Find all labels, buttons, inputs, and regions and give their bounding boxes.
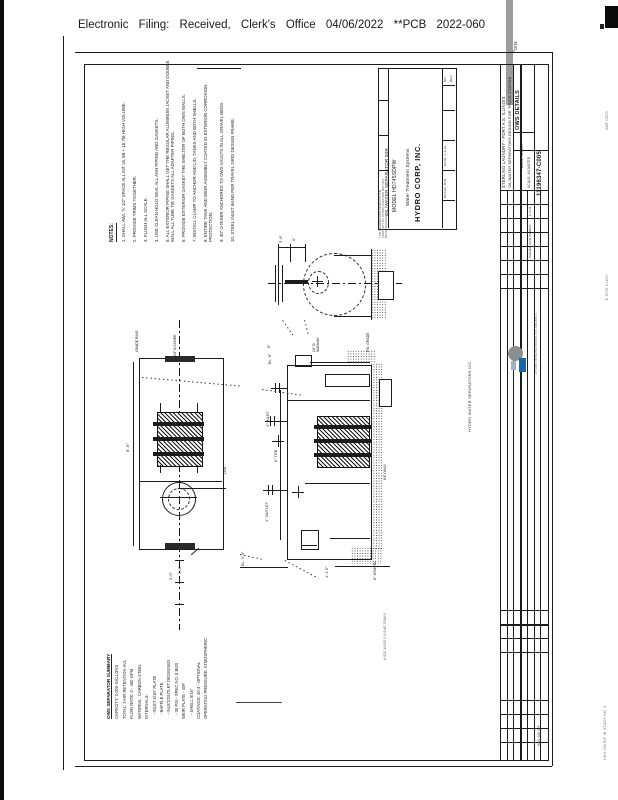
summary-heading: OWS SEPARATOR SUMMARY xyxy=(106,654,112,719)
strip-row xyxy=(500,288,548,289)
elev-gravel-label: 8" GRAVEL xyxy=(374,554,378,580)
plan-dia-label: DIA. xyxy=(223,458,227,474)
elev-media-band xyxy=(314,453,371,457)
notes-heading: NOTES: xyxy=(110,223,117,242)
note-item: 1. SHALL AWL 'A' 1/2" SPACE ALL INT UL 5… xyxy=(121,58,126,242)
endview-pipe-support xyxy=(378,271,394,300)
plan-ext-tick xyxy=(197,403,198,412)
notes-block: NOTES: 1. SHALL AWL 'A' 1/2" SPACE ALL I… xyxy=(100,58,242,242)
summary-line: - SHELL 5/16" xyxy=(190,598,195,715)
edge-fragment-2: E SITE 14150 xyxy=(606,238,610,300)
plan-media-band xyxy=(153,422,204,426)
note-item: 5. ALL EXTERIOR PIPING SHALL GET THE REG… xyxy=(165,58,175,242)
strip-row xyxy=(500,218,548,219)
strip-row xyxy=(500,700,548,701)
note-item: 10. STEEL INLET BAND PER TRAVEL GRID DES… xyxy=(230,58,235,242)
plan-access-label: 24" O COVER xyxy=(174,330,178,356)
stamp-cut-fragment: *ons xyxy=(514,26,520,52)
strip-row xyxy=(500,232,548,233)
edge-fragment-3: HNS 280 B/F IN STUDS NO. 2 xyxy=(604,610,608,760)
endview-dim-b: 6" xyxy=(293,229,297,241)
elev-riser-step xyxy=(295,355,312,367)
strip-row xyxy=(500,610,548,611)
note-item: 3. FLUSH ALL SCALE. xyxy=(143,58,148,242)
elev-nozzle-tick xyxy=(279,383,280,393)
strip-insert-label: B.O.B. INSERT xyxy=(521,144,525,168)
flange-plate xyxy=(282,265,283,302)
strip-line xyxy=(527,190,528,760)
summary-rule xyxy=(236,702,282,703)
endview-grade-label: FIN. GRADE xyxy=(367,332,371,352)
plan-media-band xyxy=(153,437,204,441)
elev-ground-line xyxy=(335,566,390,567)
strip-bottom-fragment: HNS 280 B/F xyxy=(538,704,542,746)
scanned-drawing-page: Electronic Filing: Received, Clerk's Off… xyxy=(0,0,618,800)
summary-line: INTERNALS: xyxy=(145,598,150,719)
elev-earth-top xyxy=(347,350,375,364)
plan-length-dim: 8'-6" xyxy=(126,428,130,452)
elev-partition xyxy=(287,400,370,401)
plan-ext-tick xyxy=(160,403,161,412)
nozzle-cross-v xyxy=(317,276,318,287)
summary-line: FLOW RATE: 0 - 450 GPM xyxy=(130,598,135,719)
scan-mark-top-right xyxy=(600,24,604,29)
strip-drawing-number: 11196347-C005 xyxy=(537,146,544,196)
company-rev-label: REV xyxy=(450,70,453,82)
company-cell-row xyxy=(442,170,455,171)
scan-edge-left xyxy=(0,0,4,800)
elev-media-band xyxy=(314,425,371,429)
elev-elbow-line xyxy=(301,545,317,546)
summary-block: OWS SEPARATOR SUMMARY CAPACITY: 2,000 GA… xyxy=(97,598,212,719)
elev-keyway-label: KEYWAY xyxy=(384,456,388,480)
plan-dim-b: 1'-6" xyxy=(179,552,183,574)
elev-tee-label: 6" TEE xyxy=(275,440,279,462)
summary-line: MATERIAL: CARBON STEEL xyxy=(138,598,143,719)
flange-plate xyxy=(275,265,276,302)
note-item: 9. 30" O RISER ANCHORED TO OWS VAULTS IN… xyxy=(219,58,224,242)
strip-scale-label: SCALE: AS NOTED xyxy=(528,158,532,188)
endview-top-line xyxy=(334,255,371,256)
strip-row-thick xyxy=(500,624,548,626)
strip-dotted-cell: ............ xyxy=(541,254,544,284)
summary-line: OPERATING PRESSURE: ATMOSPHERIC xyxy=(204,598,209,719)
logo-gray-column xyxy=(511,361,516,370)
centerline-tick xyxy=(175,582,184,583)
plan-centerline xyxy=(179,320,180,630)
company-date-cell: DATE: 1-4-21 xyxy=(444,140,447,166)
plan-media-band xyxy=(153,452,204,456)
summary-line: - INLET/OUTLET DESIGNED xyxy=(167,598,172,715)
flange-plate xyxy=(278,262,279,305)
strip-sheet-title: OWS DETAILS xyxy=(515,66,521,130)
summary-line: TOTAL: 2-HR RETENTION AVL xyxy=(123,598,128,719)
plan-flange-top xyxy=(165,356,195,362)
plan-manway-cross xyxy=(160,497,197,498)
notes-rule xyxy=(197,68,241,69)
company-name: HYDRO CORP, INC. xyxy=(414,72,422,222)
strip-row xyxy=(500,204,548,205)
summary-line: COATINGS: 40-3 - OPTIONAL xyxy=(197,598,202,719)
elev-mid-line xyxy=(305,483,370,484)
endview-wall-line xyxy=(371,249,372,320)
strip-rev-date: 1-4-21 xyxy=(529,202,532,216)
sheet-trim-left xyxy=(63,36,64,770)
edge-fragment-1: SMT-C005 xyxy=(606,70,610,130)
plan-dim-a: 3'-0" xyxy=(170,552,174,580)
elev-bottom-leader xyxy=(240,567,288,568)
elev-nozzle-tick xyxy=(275,383,276,393)
endview-dim-a: 3'-6" xyxy=(280,225,284,243)
strip-project-line1: STERLING LAUNDRY - FORT A.S. ILLINOIS xyxy=(502,64,507,188)
note-item: 2. PROVIDE TRIMS TOGETHER. xyxy=(132,58,137,242)
plan-manway-inner xyxy=(168,488,190,510)
elev-weir-line xyxy=(330,538,370,539)
filing-stamp-text: Electronic Filing: Received, Clerk's Off… xyxy=(78,19,518,31)
centerline-tick xyxy=(175,560,184,561)
strip-row xyxy=(513,132,534,133)
logo-blue-column xyxy=(519,358,526,372)
strip-rev-note: ISSUED FOR PERMIT xyxy=(529,228,532,258)
sheet-trim-right xyxy=(552,52,553,766)
summary-line: CAPACITY: 2,000 GALLONS xyxy=(115,598,120,719)
dim-line xyxy=(278,247,305,248)
endview-manway-label: 24" O MANWAY xyxy=(313,328,321,352)
endview-bottom-line xyxy=(334,316,371,317)
company-cell-row xyxy=(442,85,455,86)
strip-row xyxy=(500,638,548,639)
company-proprietary-note: THIS DRAWING AND DESIGN IS THE PROPERTY … xyxy=(379,178,389,238)
elev-nozzle-tick xyxy=(274,416,275,426)
sheet-trim-top xyxy=(75,52,552,53)
strip-line xyxy=(507,190,508,760)
summary-line: WEIR PLATE - 40F xyxy=(182,598,187,719)
hydro-trademark-line: HYDRO WATER SEPARATORS INC. xyxy=(468,334,472,432)
elev-outlet-label: 4" OUTLET xyxy=(266,490,270,522)
elev-outlet-elbow xyxy=(301,530,319,550)
elev-side-note: A 022 14150 5 0-6 60 TANKS xyxy=(384,575,388,660)
note-item: 7. INSTALL CLAMP TO ANCHOR AND LID, TANK… xyxy=(192,58,197,242)
sheet-trim-bottom xyxy=(75,766,552,767)
company-model: MODEL HD745SDPW xyxy=(393,78,399,212)
plan-ext-tick xyxy=(197,465,198,473)
dim-ext xyxy=(305,244,306,262)
plan-dim-line xyxy=(133,362,134,546)
company-scale-cell: SCALE: NTS xyxy=(444,172,447,198)
elev-bottom-dim: 4'-1.5" xyxy=(326,556,330,578)
strip-line xyxy=(513,64,514,760)
elev-media-band xyxy=(314,439,371,443)
elev-fg-label: EL. 5'-3" xyxy=(242,546,246,566)
elev-inlet-label: 4" INLET xyxy=(267,399,271,427)
plan-grade-ring-label: GRADE RING xyxy=(136,322,140,352)
company-cell-row xyxy=(442,200,455,201)
nozzle-dashed-circle xyxy=(308,271,329,294)
strip-project-line2: OIL/WATER SEPARATORS DESIGN FOR TRUCK ST… xyxy=(508,64,512,188)
scan-blob-top-right xyxy=(605,6,618,28)
note-item: 4. USE CLEAN HOLD SEAL ALL ASH PIPING AN… xyxy=(154,58,159,242)
plan-weir-line xyxy=(178,488,226,489)
strip-line xyxy=(520,64,522,760)
elev-cross-v xyxy=(298,486,299,498)
note-item: 8. ENTIRE TANK AND WEIR ASSEMBLY COATED … xyxy=(203,58,213,242)
summary-line: - 30 PSI - SPEC NO. 5 BUS xyxy=(175,598,180,715)
elev-baffle-box xyxy=(325,374,370,387)
company-no-label: NO. xyxy=(444,70,447,82)
note-item: 6. PROVIDE EXTERIOR GASKET THE SHELTER O… xyxy=(181,58,186,242)
plan-flange-bottom xyxy=(165,543,195,549)
company-cell-row xyxy=(442,110,455,111)
elev-pipe-riser xyxy=(280,390,281,540)
strip-row xyxy=(500,246,548,247)
strip-row xyxy=(500,652,548,653)
summary-line: - INLET 5/16" PLATE xyxy=(153,598,158,715)
hydro-logo xyxy=(508,345,528,375)
elev-keyway-notch xyxy=(379,379,392,407)
elev-el-top-label: EL. 8" xyxy=(269,346,273,364)
logo-caption: HYDRO INTERNATIONAL OF AMERICA xyxy=(535,316,538,374)
inlet-pipe-solid xyxy=(285,280,308,284)
company-tagline: Water Treatment Systems xyxy=(405,76,410,206)
summary-line: - BAFFLE PLATE xyxy=(160,598,165,715)
elev-nozzle-tick xyxy=(272,485,273,495)
strip-line xyxy=(534,64,535,760)
plan-ext-tick xyxy=(160,465,161,473)
